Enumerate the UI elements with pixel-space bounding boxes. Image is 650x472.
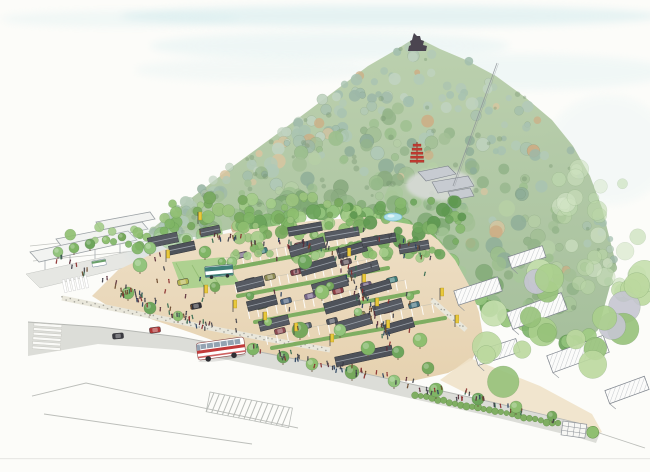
forest-accent (549, 164, 553, 168)
tree-highlight (407, 293, 411, 297)
belt-tree (592, 306, 617, 331)
forest-accent (453, 162, 458, 167)
belt-tree (445, 215, 453, 223)
hedge-shrub (492, 408, 499, 415)
belt-tree (587, 201, 607, 221)
stone-dot (65, 299, 67, 301)
stone-dot (288, 341, 290, 343)
forest-tree (421, 115, 434, 128)
belt-tree (275, 225, 288, 238)
forest-accent (523, 96, 526, 99)
stone-dot (94, 303, 96, 305)
stone-dot (243, 333, 245, 335)
belt-tree (368, 250, 377, 259)
stone-dot (440, 309, 442, 311)
belt-tree (252, 223, 258, 229)
stone-dot (148, 316, 150, 318)
belt-tree (125, 241, 132, 248)
stone-dot (190, 325, 192, 327)
tree-highlight (54, 248, 59, 253)
parked-car (149, 327, 161, 334)
stone-dot (69, 298, 71, 300)
forest-accent (571, 305, 576, 310)
stone-dot (107, 308, 109, 310)
forest-tree (314, 118, 324, 128)
car-roof (115, 334, 121, 339)
stone-dot (450, 314, 452, 316)
belt-tree (233, 249, 239, 255)
stone-dot (207, 328, 209, 330)
belt-tree (342, 204, 350, 212)
belt-tree (590, 227, 606, 243)
yellow-banner (331, 334, 334, 342)
forest-tree (407, 138, 417, 148)
stone-dot (144, 313, 146, 315)
belt-tree (481, 300, 507, 326)
forest-tree (427, 69, 435, 77)
tree-highlight (363, 343, 369, 349)
stone-dot (447, 314, 449, 316)
tree-highlight (201, 248, 206, 253)
pagoda-tier (410, 160, 424, 162)
tree-highlight (70, 244, 75, 249)
belt-tree (616, 242, 634, 260)
forest-tree (492, 257, 506, 271)
belt-tree (299, 192, 308, 201)
visitor-figure (253, 344, 255, 349)
stone-dot (86, 301, 88, 303)
pond-highlight (387, 214, 394, 217)
stone-dot (231, 333, 233, 335)
yellow-banner (348, 248, 351, 256)
forest-tree (443, 81, 452, 90)
stone-dot (279, 339, 281, 341)
forest-accent (326, 112, 332, 118)
forest-tree (284, 140, 290, 146)
belt-tree (254, 249, 262, 257)
scan-artifacts (0, 458, 650, 459)
forest-tree (441, 102, 452, 113)
forest-tree (408, 52, 418, 62)
belt-tree (427, 197, 435, 205)
site-rendering-illustration (0, 0, 650, 472)
forest-tree (458, 93, 466, 101)
stone-dot (157, 318, 159, 320)
stone-dot (119, 308, 121, 310)
pagoda-tier (411, 156, 424, 158)
forest-tree (349, 90, 361, 102)
visitor-figure (362, 289, 364, 294)
stone-dot (103, 305, 105, 307)
belt-tree (579, 350, 607, 378)
forest-accent (262, 174, 268, 180)
belt-tree (287, 217, 294, 224)
forest-accent (431, 129, 436, 134)
forest-tree (427, 50, 436, 59)
stone-dot (136, 311, 138, 313)
belt-tree (222, 205, 234, 217)
forest-tree (222, 176, 230, 184)
forest-accent (497, 136, 502, 141)
visitor-figure (202, 319, 204, 324)
forest-tree (528, 215, 541, 228)
stone-dot (161, 316, 163, 318)
forest-tree (465, 57, 474, 66)
forest-accent (388, 134, 394, 140)
forest-tree (391, 153, 399, 161)
forest-tree (534, 116, 542, 124)
stone-dot (74, 301, 76, 303)
belt-tree (594, 179, 608, 193)
hedge-shrub (446, 400, 452, 406)
visitor-figure (399, 243, 401, 248)
forest-tree (489, 225, 502, 238)
forest-tree (498, 164, 509, 175)
forest-accent (253, 172, 258, 177)
pagoda-tier (411, 152, 423, 154)
forest-tree (360, 139, 372, 151)
belt-tree (311, 251, 320, 260)
belt-tree (535, 264, 564, 293)
forest-accent (371, 194, 374, 197)
forest-accent (378, 96, 383, 101)
belt-tree (327, 212, 333, 218)
yellow-banner (456, 315, 459, 323)
belt-tree (281, 204, 288, 211)
tree-highlight (512, 403, 517, 408)
belt-tree (203, 191, 216, 204)
stone-dot (115, 310, 117, 312)
stone-dot (82, 303, 84, 305)
belt-tree (456, 224, 466, 234)
forest-tree (485, 107, 493, 115)
tree-highlight (135, 260, 141, 266)
belt-tree (487, 366, 519, 398)
belt-tree (238, 195, 248, 205)
belt-tree (363, 216, 377, 230)
forest-tree (504, 270, 513, 279)
visitor-figure (146, 303, 148, 308)
belt-tree (243, 252, 251, 260)
forest-accent (398, 47, 402, 51)
stone-dot (255, 337, 257, 339)
belt-tree (350, 211, 358, 219)
forest-tree (375, 192, 383, 200)
stone-dot (437, 303, 439, 305)
belt-tree (94, 222, 104, 232)
stone-dot (239, 334, 241, 336)
visitor-figure (204, 326, 206, 331)
tree-highlight (415, 335, 421, 341)
forest-accent (249, 155, 254, 160)
forest-tree (380, 67, 388, 75)
stone-dot (462, 325, 464, 327)
tree-highlight (548, 412, 553, 417)
forest-accent (426, 204, 432, 210)
forest-tree (243, 171, 253, 181)
parked-car (112, 333, 123, 340)
forest-tree (339, 156, 348, 165)
belt-tree (266, 199, 276, 209)
forest-accent (494, 107, 497, 110)
hedge-shrub (532, 416, 538, 422)
visitor-figure (363, 290, 365, 295)
visitor-figure (86, 267, 88, 272)
belt-tree (165, 219, 175, 229)
stone-dot (434, 303, 436, 305)
stone-dot (247, 336, 249, 338)
visitor-figure (340, 268, 342, 273)
tree-highlight (119, 234, 123, 238)
forest-accent (515, 91, 521, 97)
stone-dot (227, 330, 229, 332)
forest-accent (487, 142, 491, 146)
belt-tree (325, 221, 334, 230)
visitor-figure (378, 237, 380, 242)
tree-highlight (355, 309, 359, 313)
forest-tree (371, 146, 385, 160)
forest-tree (540, 151, 549, 160)
tree-highlight (146, 244, 151, 249)
forest-tree (481, 188, 488, 195)
forest-accent (353, 166, 359, 172)
garden-pond (384, 213, 402, 221)
stone-dot (251, 334, 253, 336)
forest-tree (403, 96, 414, 107)
visitor-figure (377, 321, 379, 326)
visitor-figure (381, 334, 383, 339)
fringe-tree (306, 204, 321, 219)
forest-tree (446, 91, 454, 99)
belt-tree (375, 201, 385, 211)
belt-tree (110, 238, 117, 245)
forest-tree (308, 152, 321, 165)
forest-tree (516, 189, 526, 199)
belt-tree (379, 248, 389, 258)
forest-tree (555, 243, 563, 251)
belt-tree (513, 341, 531, 359)
belt-tree (410, 199, 417, 206)
stone-dot (267, 337, 269, 339)
belt-tree (581, 280, 595, 294)
belt-tree (427, 224, 438, 235)
stone-dot (313, 345, 315, 347)
forest-tree (522, 123, 530, 131)
stone-dot (123, 311, 125, 313)
forest-tree (389, 73, 401, 85)
hedge-shrub (412, 392, 419, 399)
forest-tree (535, 180, 547, 192)
forest-tree (292, 157, 307, 172)
visitor-figure (290, 241, 292, 246)
visitor-figure (144, 298, 146, 303)
stone-dot (275, 341, 277, 343)
hedge-shrub (481, 406, 487, 412)
belt-tree (565, 239, 578, 252)
forest-accent (424, 58, 427, 61)
belt-tree (323, 200, 331, 208)
belt-tree (187, 222, 195, 230)
belt-tree (286, 193, 299, 206)
stone-dot (140, 315, 142, 317)
belt-tree (453, 238, 459, 244)
forest-accent (425, 105, 429, 109)
forest-tree (225, 163, 233, 171)
yellow-banner (376, 298, 379, 306)
forest-tree (514, 106, 523, 115)
yellow-banner (167, 250, 170, 258)
forest-tree (317, 94, 328, 105)
belt-tree (429, 247, 436, 254)
forest-tree (359, 167, 368, 176)
forest-tree (244, 179, 252, 187)
belt-tree (307, 192, 317, 202)
stone-dot (300, 345, 302, 347)
stone-dot (165, 320, 167, 322)
scanner-edge-line (0, 458, 650, 459)
visitor-figure (178, 313, 180, 318)
belt-tree (436, 203, 450, 217)
tree-highlight (103, 237, 107, 241)
visitor-figure (340, 259, 342, 264)
hedge-shrub (463, 403, 470, 410)
stone-dot (153, 315, 155, 317)
stone-dot (169, 318, 171, 320)
visitor-figure (507, 403, 509, 408)
belt-tree (552, 172, 566, 186)
belt-tree (312, 232, 318, 238)
forest-tree (501, 121, 508, 128)
forest-accent (390, 181, 396, 187)
belt-tree (334, 198, 343, 207)
belt-tree (458, 213, 467, 222)
visitor-figure (307, 356, 309, 361)
belt-tree (577, 259, 594, 276)
forest-accent (320, 177, 325, 182)
sky-wash (0, 11, 240, 27)
tree-highlight (228, 258, 233, 263)
hedge-shrub (504, 410, 509, 415)
forest-tree (256, 150, 263, 157)
belt-tree (346, 218, 354, 226)
hedge-shrub (520, 415, 527, 422)
forest-accent (269, 139, 274, 144)
belt-tree (567, 190, 583, 206)
stone-dot (321, 347, 323, 349)
forest-tree (400, 120, 412, 132)
belt-tree (624, 273, 650, 299)
forest-tree (438, 94, 446, 102)
stone-dot (90, 304, 92, 306)
tree-highlight (327, 283, 331, 287)
belt-tree (108, 227, 116, 235)
belt-tree (435, 249, 445, 259)
belt-tree (395, 198, 407, 210)
belt-tree (251, 231, 264, 244)
forest-tree (414, 74, 425, 85)
visitor-figure (332, 366, 334, 371)
stone-dot (61, 296, 63, 298)
visitor-figure (84, 268, 86, 273)
belt-tree (630, 229, 646, 245)
hedge-shrub (452, 401, 458, 407)
forest-tree (209, 175, 218, 184)
car-roof (152, 328, 158, 333)
belt-tree (266, 250, 273, 257)
belt-tree (133, 227, 143, 237)
forest-tree (351, 74, 363, 86)
tree-highlight (300, 257, 306, 263)
tree-highlight (390, 377, 395, 382)
belt-tree (274, 214, 284, 224)
tree-highlight (247, 293, 251, 297)
forest-tree (328, 131, 343, 146)
hedge-shrub (498, 409, 504, 415)
stone-dot (128, 310, 130, 312)
forest-tree (438, 133, 450, 145)
forest-accent (522, 176, 527, 181)
visitor-figure (278, 238, 280, 243)
yellow-banner (441, 288, 444, 296)
stone-dot (182, 323, 184, 325)
stone-dot (459, 325, 461, 327)
belt-tree (566, 330, 585, 349)
forest-tree (583, 239, 591, 247)
forest-accent (245, 157, 249, 161)
hedge-shrub (440, 397, 446, 403)
forest-accent (321, 184, 326, 189)
forest-tree (424, 150, 434, 160)
forest-accent (352, 159, 358, 165)
tree-highlight (424, 364, 429, 369)
yellow-banner (387, 320, 390, 328)
stone-dot (132, 313, 134, 315)
tree-highlight (317, 287, 323, 293)
visitor-figure (426, 387, 428, 392)
stone-dot (215, 330, 217, 332)
visitor-figure (60, 255, 62, 260)
pagoda-tier (412, 148, 422, 150)
forest-tree (341, 81, 348, 88)
forest-tree (332, 92, 341, 101)
stone-dot (98, 306, 100, 308)
forest-tree (499, 200, 515, 216)
stone-dot (308, 347, 310, 349)
belt-tree (617, 179, 627, 189)
hedge-shrub (526, 415, 532, 421)
yellow-banner (234, 300, 237, 308)
forest-accent (292, 155, 295, 158)
visitor-figure (254, 240, 256, 245)
forest-tree (506, 95, 512, 101)
visitor-figure (458, 395, 460, 400)
forest-tree (360, 107, 368, 115)
stone-dot (453, 319, 455, 321)
belt-tree (132, 243, 144, 255)
forest-tree (400, 146, 410, 156)
tree-highlight (86, 240, 91, 245)
forest-accent (304, 118, 308, 122)
stone-dot (223, 331, 225, 333)
forest-accent (352, 154, 357, 159)
forest-tree (470, 167, 477, 174)
forest-tree (393, 139, 401, 147)
forest-accent (248, 187, 253, 192)
stone-dot (431, 298, 433, 300)
belt-tree (449, 196, 462, 209)
forest-accent (301, 140, 306, 145)
forest-tree (500, 183, 511, 194)
